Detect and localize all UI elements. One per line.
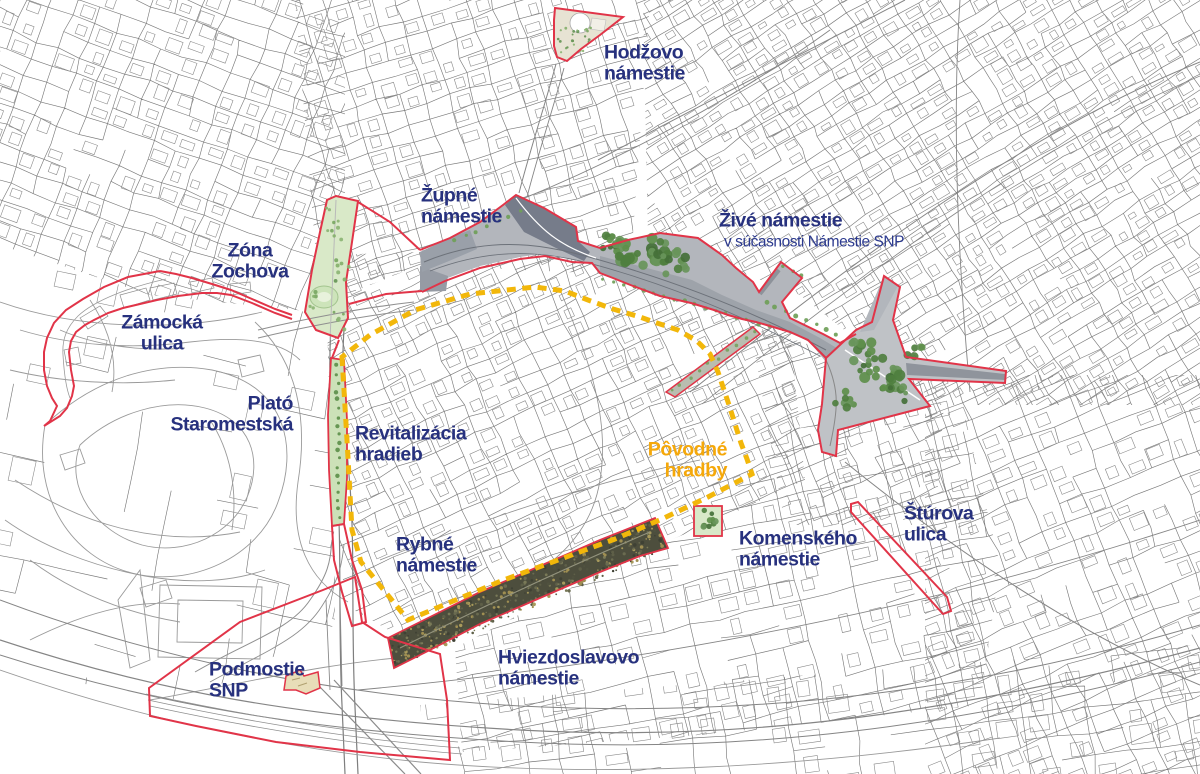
svg-text:námestie: námestie <box>604 63 686 85</box>
svg-text:námestie: námestie <box>421 206 503 228</box>
svg-text:SNP: SNP <box>209 680 248 702</box>
svg-text:hradieb: hradieb <box>355 444 423 466</box>
svg-text:Podmostie: Podmostie <box>209 659 305 681</box>
svg-text:Hviezdoslavovo: Hviezdoslavovo <box>498 647 640 669</box>
svg-text:námestie: námestie <box>396 555 478 577</box>
svg-text:Hodžovo: Hodžovo <box>604 42 684 64</box>
svg-text:Župné: Župné <box>421 183 478 207</box>
svg-text:Pôvodné: Pôvodné <box>648 439 728 461</box>
svg-text:Zóna: Zóna <box>228 240 273 262</box>
svg-text:Živé námestie: Živé námestie <box>719 208 843 232</box>
svg-text:Komenského: Komenského <box>739 528 857 550</box>
svg-text:Plató: Plató <box>248 393 294 415</box>
svg-text:v súčasnosti Námestie SNP: v súčasnosti Námestie SNP <box>724 233 904 250</box>
svg-text:námestie: námestie <box>739 549 821 571</box>
svg-text:Štúrova: Štúrova <box>904 501 974 525</box>
svg-text:ulica: ulica <box>141 333 184 355</box>
svg-text:Revitalizácia: Revitalizácia <box>355 423 467 445</box>
svg-text:hradby: hradby <box>665 460 728 482</box>
svg-text:ulica: ulica <box>904 524 947 546</box>
svg-text:Staromestská: Staromestská <box>170 414 293 436</box>
svg-text:Rybné: Rybné <box>396 534 454 556</box>
svg-text:námestie: námestie <box>498 668 580 690</box>
svg-text:Zámocká: Zámocká <box>121 312 203 334</box>
svg-text:Zochova: Zochova <box>211 261 289 283</box>
